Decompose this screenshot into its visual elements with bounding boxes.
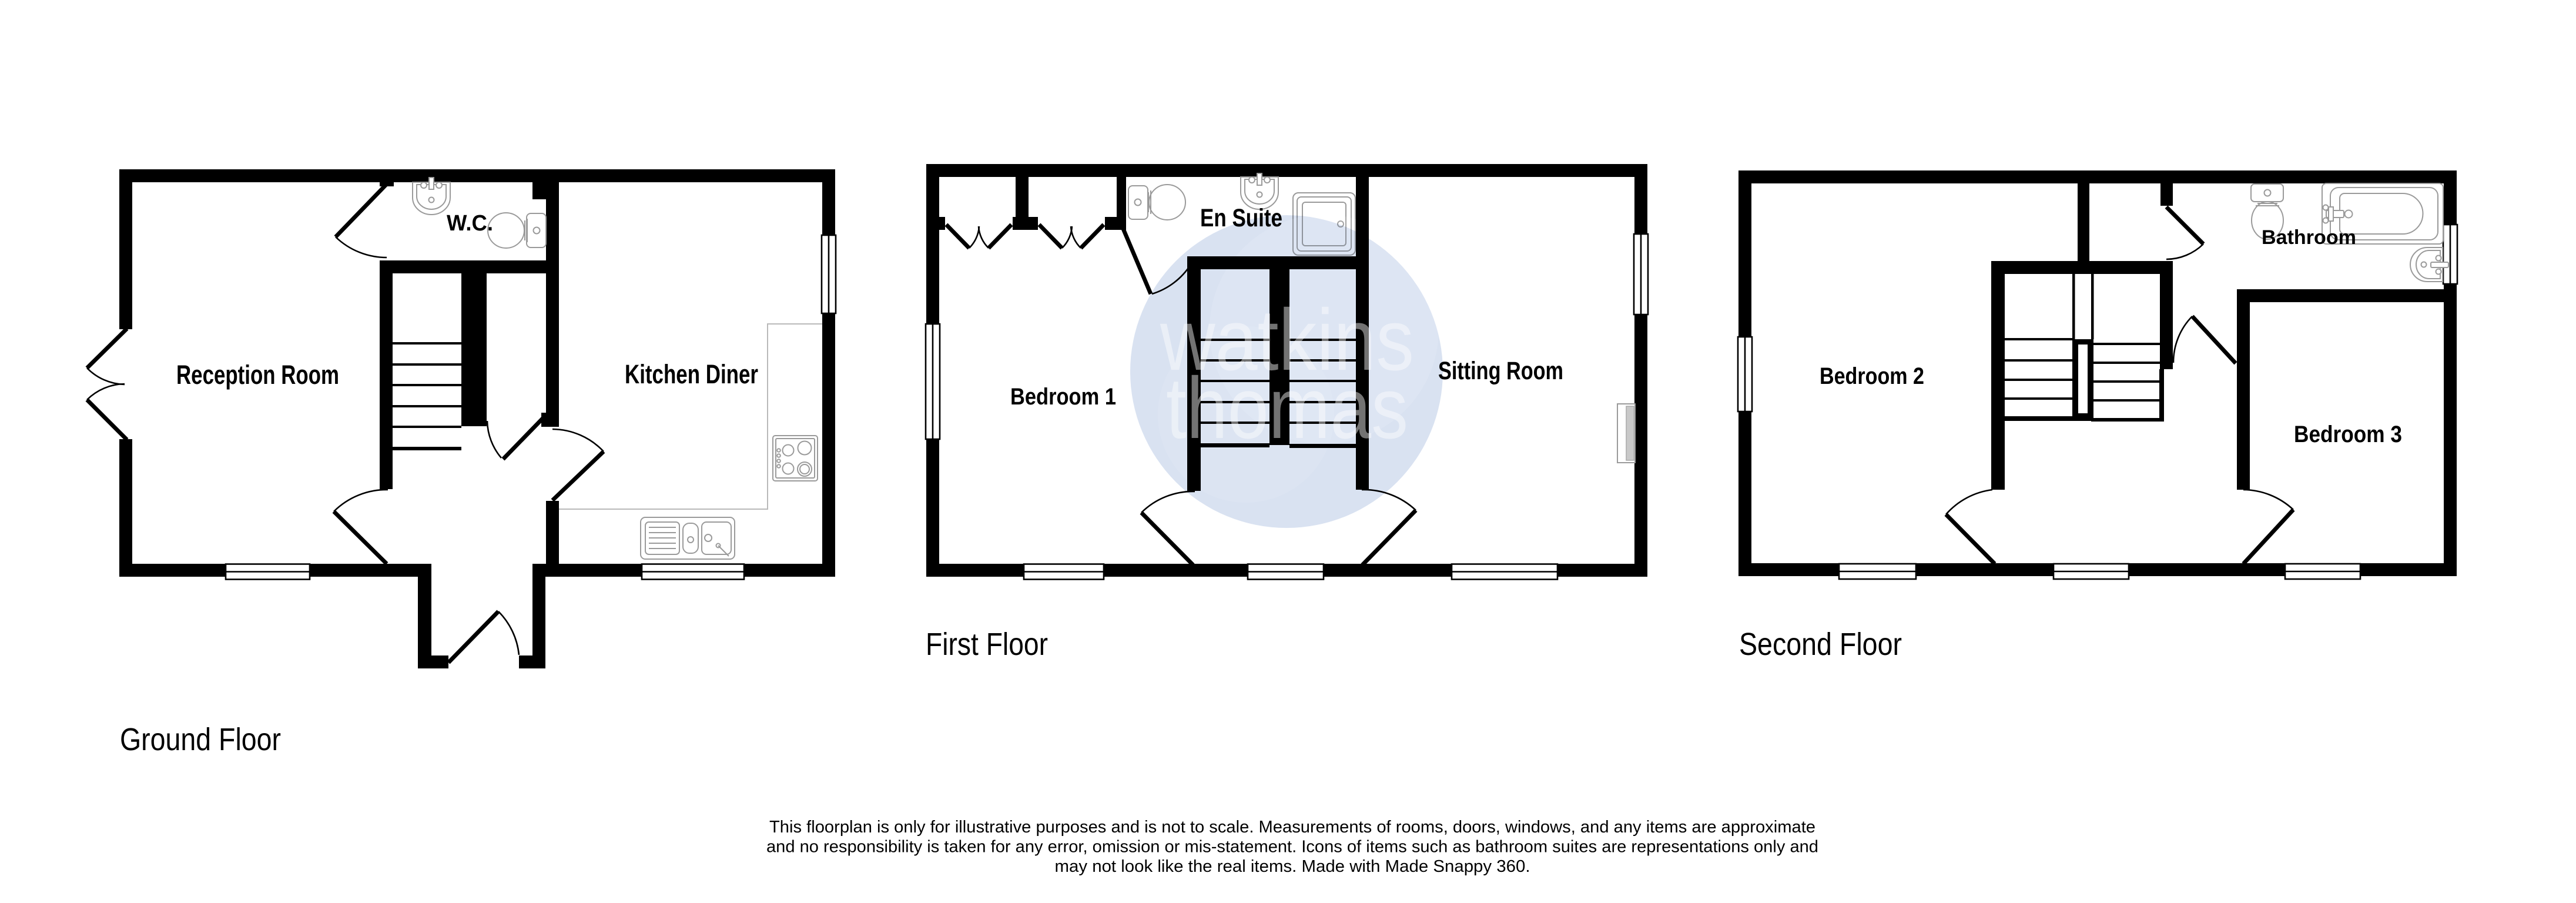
svg-text:may not look like the real ite: may not look like the real items. Made w… (1055, 857, 1530, 876)
svg-text:En Suite: En Suite (1200, 204, 1282, 232)
svg-text:This floorplan is only for ill: This floorplan is only for illustrative … (769, 818, 1815, 837)
svg-text:thomas: thomas (1166, 360, 1408, 457)
svg-text:W.C.: W.C. (447, 211, 493, 236)
svg-text:Kitchen Diner: Kitchen Diner (625, 359, 758, 389)
svg-text:Second Floor: Second Floor (1739, 627, 1902, 662)
svg-text:Sitting Room: Sitting Room (1438, 357, 1563, 385)
svg-text:Bathroom: Bathroom (2262, 226, 2356, 249)
svg-text:Bedroom 1: Bedroom 1 (1010, 384, 1116, 410)
svg-text:and no responsibility is taken: and no responsibility is taken for any e… (766, 838, 1818, 857)
svg-text:Bedroom 2: Bedroom 2 (1820, 363, 1924, 389)
svg-text:Ground Floor: Ground Floor (120, 722, 281, 757)
svg-text:Bedroom 3: Bedroom 3 (2294, 422, 2402, 447)
svg-text:First Floor: First Floor (926, 627, 1048, 662)
svg-text:Reception Room: Reception Room (176, 360, 339, 390)
